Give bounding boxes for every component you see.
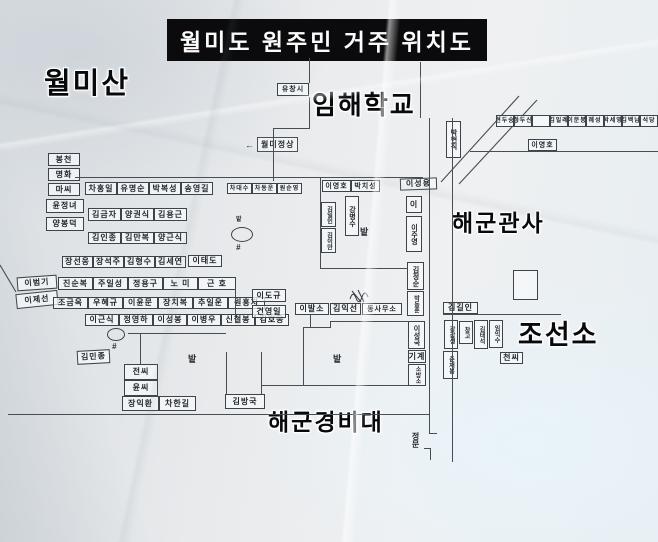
name-box: 이성봉 — [153, 314, 187, 326]
name-box: 혜성 — [586, 115, 604, 127]
name-box: 김세연 — [155, 256, 186, 268]
road-line — [429, 433, 437, 434]
name-box: 박치성 — [351, 180, 380, 192]
road-line — [273, 128, 274, 181]
road-line — [330, 321, 409, 322]
road-line — [235, 288, 236, 323]
summit-label-text: 월미정상 — [257, 137, 298, 152]
name-box: 이병우 — [187, 314, 221, 326]
well-icon — [231, 227, 253, 242]
road-line — [140, 333, 141, 364]
name-box: 창고 — [459, 321, 473, 344]
area-label-wolmisan: 월미산 — [44, 70, 130, 99]
name-box: 석당 — [640, 115, 658, 127]
name-box: 조금옥 — [53, 297, 88, 309]
name-box: 정영하 — [119, 314, 153, 326]
name-box: 박복성 — [149, 182, 181, 195]
area-label-navy-quarters: 해군관사 — [452, 212, 545, 235]
name-box: 강갑생 — [444, 320, 458, 349]
road-line — [226, 352, 227, 394]
name-box: 춘재봉 — [443, 351, 458, 379]
name-box: 장석주 — [93, 256, 124, 268]
name-box: 이범기 — [17, 275, 58, 292]
name-box: 윤정녀 — [46, 199, 84, 213]
road-line — [443, 314, 561, 315]
road-line — [273, 128, 310, 129]
name-box: 주일성 — [93, 277, 128, 290]
name-box: 김만복 — [121, 232, 154, 244]
scribble-mark — [352, 291, 361, 302]
road-line — [320, 268, 408, 269]
name-box: 김일례 — [550, 115, 568, 127]
name-box: 명화 — [48, 168, 80, 181]
name-box: 김태석 — [474, 320, 488, 349]
name-box: 장치복 — [158, 297, 193, 309]
name-box: 소방소 — [408, 364, 426, 386]
name-box: 전씨 — [124, 364, 158, 380]
name-box: 양권식 — [121, 208, 154, 221]
well-hash-mark: # — [236, 244, 240, 252]
field-label: 밭 — [360, 228, 368, 237]
name-box: 강병수 — [345, 196, 359, 236]
name-box: 양봉덕 — [46, 217, 84, 231]
map-title: 월미도 원주민 거주 위치도 — [167, 19, 487, 61]
field-label: 밭 — [188, 355, 196, 364]
road-line — [8, 414, 429, 415]
name-box: 현두숭 — [496, 115, 514, 127]
road-line — [320, 178, 321, 268]
road-line — [261, 385, 409, 386]
field-label: 밭 — [236, 217, 242, 223]
name-box: 차홍일 — [85, 182, 117, 195]
name-box: 근 호 — [198, 277, 236, 290]
road-line — [330, 321, 331, 328]
name-box: 추일운 — [193, 297, 228, 309]
name-box: 김인종 — [88, 232, 121, 244]
name-box: 봉천 — [48, 153, 80, 166]
road-line — [309, 97, 310, 128]
road-line — [452, 118, 453, 462]
left-arrow-icon: ← — [245, 140, 254, 150]
road-diagonal — [459, 100, 537, 184]
name-box: 김길인 — [443, 302, 478, 314]
scribble-mark — [358, 290, 364, 302]
name-box: 이태도 — [188, 255, 222, 267]
road-line — [75, 177, 423, 178]
road-line — [420, 62, 421, 118]
name-box: 윤씨 — [124, 380, 158, 396]
name-box: 김용근 — [154, 208, 187, 221]
road-line — [470, 151, 658, 152]
name-box: 이주영 — [406, 216, 422, 252]
name-box: 이성용 — [400, 177, 437, 190]
name-box: 장익환 — [122, 396, 159, 411]
name-box: 이영호 — [528, 139, 557, 151]
name-box: 유창시 — [277, 83, 309, 96]
name-box: 이문봉 — [568, 115, 586, 127]
field-label: 밭 — [333, 355, 341, 364]
name-box: 김일인 — [321, 202, 336, 227]
gate-label: 정문 — [411, 432, 419, 448]
road-line — [309, 58, 310, 83]
name-box: 장선웅 — [62, 256, 93, 268]
name-box: 천씨 — [500, 352, 523, 364]
name-box: 청두신 — [514, 115, 532, 127]
name-box: 차대수 — [227, 183, 252, 194]
name-box: 노 미 — [163, 277, 198, 290]
name-box: 이영호 — [322, 180, 351, 192]
summit-label: ← 월미정상 — [245, 137, 298, 152]
name-box: 김금자 — [88, 208, 121, 221]
name-box: 건영일 — [252, 305, 286, 318]
name-box: 김이만 — [321, 228, 336, 253]
name-box: 이근식 — [85, 314, 119, 326]
name-box: 유명순 — [117, 182, 149, 195]
name-box: 송영길 — [181, 182, 213, 195]
well-icon — [107, 328, 125, 341]
map-stage: 월미도 원주민 거주 위치도 ← 월미정상 정문 월미산임해학교해군관사조선소해… — [0, 0, 658, 542]
name-box: 김형수 — [124, 256, 155, 268]
name-box: 원순영 — [277, 183, 302, 194]
area-label-imhae-school: 임해학교 — [312, 92, 416, 118]
name-box: 박현직 — [446, 121, 461, 158]
name-box: 우혜규 — [88, 297, 123, 309]
name-box: 양근식 — [154, 232, 187, 244]
road-line — [303, 327, 331, 328]
name-box: 김익선 — [330, 303, 361, 315]
road-line — [310, 315, 311, 327]
scribble-mark — [350, 293, 368, 302]
name-box: 김방국 — [225, 394, 265, 409]
name-box: 차한길 — [159, 396, 196, 411]
name-box: 이도규 — [252, 289, 286, 302]
name-box: 마씨 — [48, 183, 80, 196]
road-line — [303, 327, 304, 386]
road-line — [430, 448, 431, 460]
name-box: 이윤문 — [123, 297, 158, 309]
name-box: 이 — [406, 196, 422, 213]
empty-box — [532, 115, 550, 127]
name-box: 동사무소 — [362, 303, 402, 315]
name-box: 박동훈 — [407, 291, 424, 316]
name-box: 정용구 — [128, 277, 163, 290]
area-label-shipyard: 조선소 — [518, 322, 599, 349]
road-line — [128, 333, 226, 334]
empty-box — [513, 270, 538, 300]
well-hash-mark: # — [112, 343, 116, 351]
name-box: 이성국 — [408, 321, 425, 349]
name-box: 임익수 — [489, 320, 503, 348]
name-box: 김민종 — [77, 349, 111, 365]
road-line — [429, 118, 430, 433]
road-diagonal — [0, 265, 16, 292]
name-box: 박세영 — [604, 115, 622, 127]
name-box: 김정순 — [407, 262, 424, 290]
name-box: 기계 — [408, 350, 426, 363]
name-box: 진순복 — [58, 277, 93, 290]
name-box: 신철봉 — [221, 314, 255, 326]
name-box: 이발소 — [295, 303, 329, 315]
name-box: 김백남 — [622, 115, 640, 127]
name-box: 차동운 — [252, 183, 277, 194]
road-line — [261, 352, 262, 394]
